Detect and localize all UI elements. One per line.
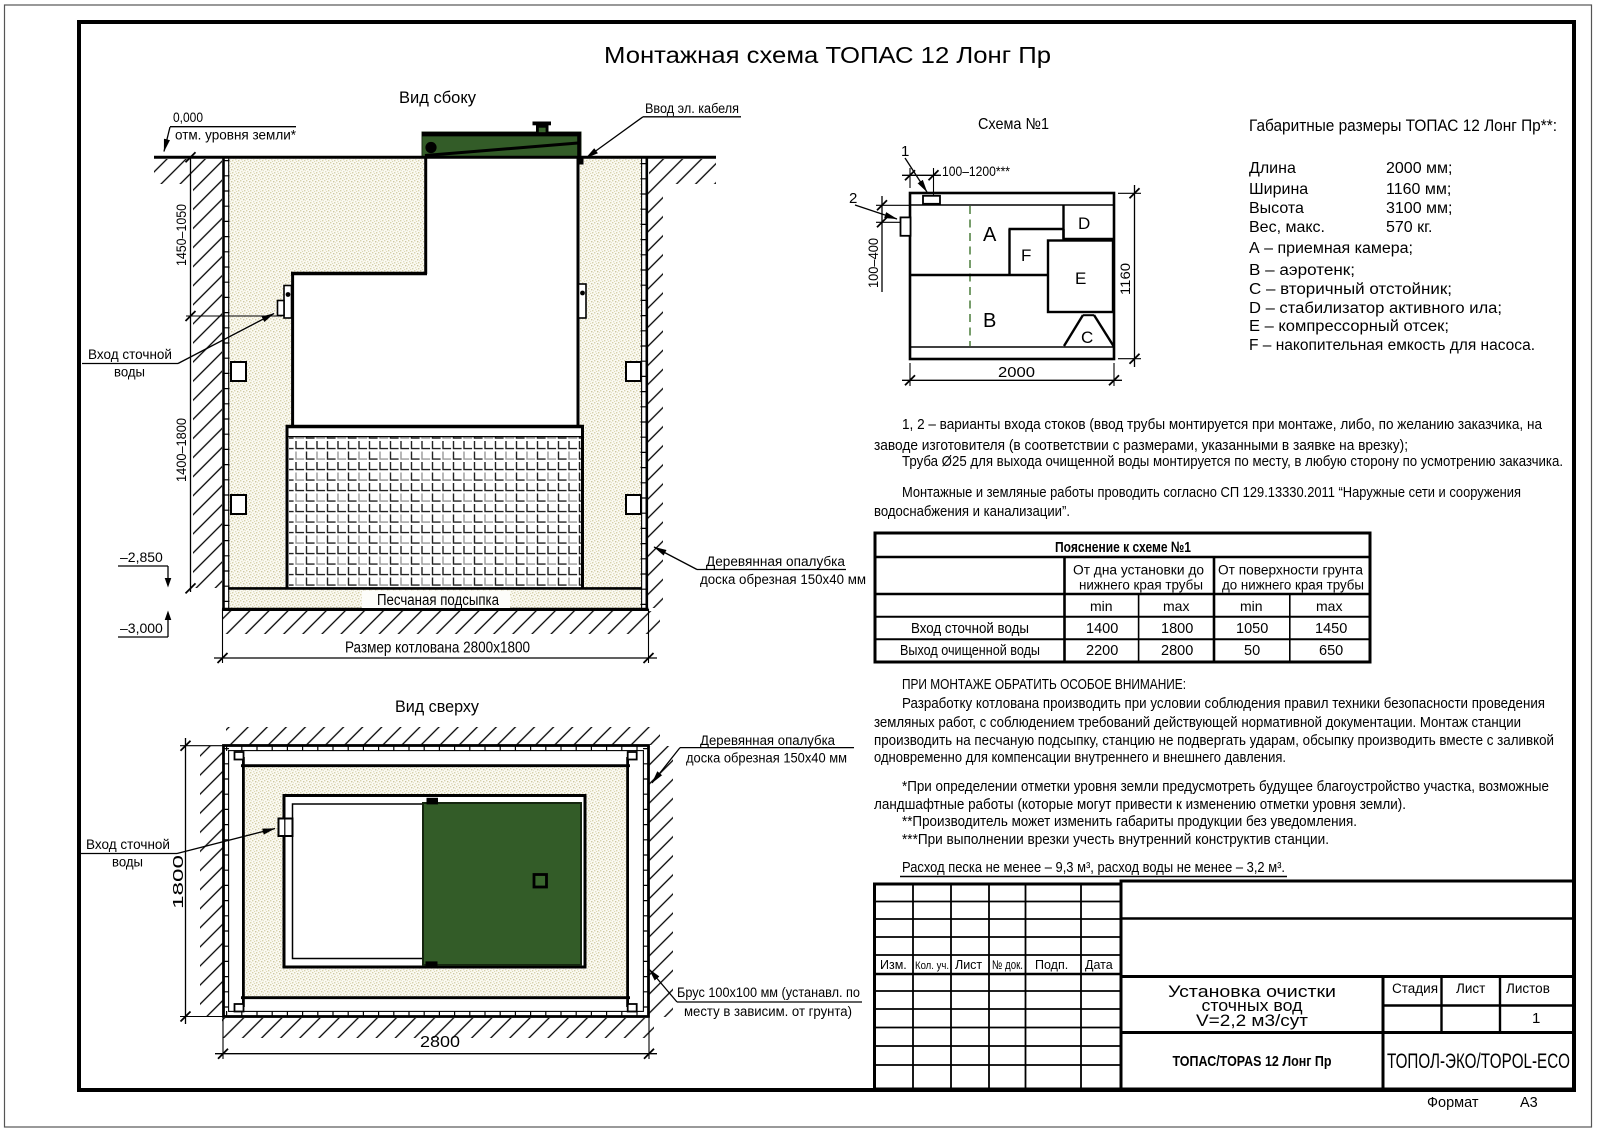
svg-text:min: min <box>1090 598 1113 614</box>
svg-text:№ док.: № док. <box>992 958 1023 972</box>
svg-text:земляных работ, с соблюдением: земляных работ, с соблюдением требований… <box>874 715 1521 731</box>
svg-text:Габаритные размеры ТОПАС 12 Ло: Габаритные размеры ТОПАС 12 Лонг Пр**: <box>1249 116 1557 135</box>
svg-text:месту в зависим. от грунта): месту в зависим. от грунта) <box>684 1004 852 1019</box>
svg-text:1160: 1160 <box>1117 263 1133 295</box>
svg-text:0,000: 0,000 <box>173 109 203 125</box>
svg-text:1400: 1400 <box>1086 621 1118 637</box>
svg-text:Размер котлована 2800х1800: Размер котлована 2800х1800 <box>345 640 530 657</box>
svg-text:одновременно для компенсации в: одновременно для компенсации внутреннего… <box>874 750 1286 766</box>
svg-text:От поверхности грунта: От поверхности грунта <box>1218 563 1363 578</box>
svg-text:**Производитель может изменить: **Производитель может изменить габариты … <box>902 814 1357 830</box>
svg-text:E – компрессорный отсек;: E – компрессорный отсек; <box>1249 318 1449 335</box>
svg-text:Пояснение к схеме №1: Пояснение к схеме №1 <box>1055 539 1191 556</box>
svg-text:заводе изготовителя (в соответ: заводе изготовителя (в соответствии с ра… <box>874 438 1408 454</box>
svg-text:1: 1 <box>1532 1010 1540 1027</box>
svg-text:C: C <box>1081 328 1093 347</box>
svg-text:C – вторичный отстойник;: C – вторичный отстойник; <box>1249 281 1452 298</box>
svg-text:Вид сбоку: Вид сбоку <box>399 88 476 107</box>
svg-text:max: max <box>1316 598 1342 614</box>
svg-text:2: 2 <box>849 190 857 207</box>
svg-text:А3: А3 <box>1520 1095 1538 1111</box>
svg-text:От дна установки до: От дна установки до <box>1073 563 1204 578</box>
svg-text:Лист: Лист <box>1456 981 1485 996</box>
svg-text:–3,000: –3,000 <box>120 620 163 636</box>
svg-text:отм. уровня земли*: отм. уровня земли* <box>175 128 297 143</box>
svg-text:Дата: Дата <box>1085 958 1113 972</box>
svg-text:1160 мм;: 1160 мм; <box>1386 181 1451 198</box>
svg-text:2000: 2000 <box>998 365 1035 381</box>
svg-text:до нижнего края трубы: до нижнего края трубы <box>1222 578 1364 593</box>
svg-text:Выход очищенной воды: Выход очищенной воды <box>900 643 1040 659</box>
svg-text:Деревянная опалубка: Деревянная опалубка <box>706 554 845 569</box>
svg-text:ПРИ МОНТАЖЕ ОБРАТИТЬ ОСОБОЕ ВН: ПРИ МОНТАЖЕ ОБРАТИТЬ ОСОБОЕ ВНИМАНИЕ: <box>902 677 1186 693</box>
svg-text:Разработку котлована производи: Разработку котлована производить при усл… <box>902 696 1545 712</box>
svg-text:570 кг.: 570 кг. <box>1386 219 1432 236</box>
svg-text:нижнего края трубы: нижнего края трубы <box>1079 578 1203 593</box>
svg-text:Монтажные и земляные работы пр: Монтажные и земляные работы проводить со… <box>902 485 1521 501</box>
svg-text:D – стабилизатор активного ила: D – стабилизатор активного ила; <box>1249 300 1502 317</box>
svg-text:1050: 1050 <box>1236 621 1268 637</box>
svg-text:Деревянная опалубка: Деревянная опалубка <box>700 733 835 748</box>
svg-text:1450–1050: 1450–1050 <box>173 204 189 266</box>
svg-text:V=2,2 м3/сут: V=2,2 м3/сут <box>1196 1012 1309 1030</box>
svg-text:Вход сточной воды: Вход сточной воды <box>911 621 1029 637</box>
svg-text:3100 мм;: 3100 мм; <box>1386 200 1452 217</box>
svg-text:***При выполнении врезки учест: ***При выполнении врезки учесть внутренн… <box>902 832 1329 848</box>
svg-text:Вход сточной: Вход сточной <box>88 347 172 362</box>
svg-text:Высота: Высота <box>1249 200 1304 217</box>
svg-text:B: B <box>983 310 996 332</box>
svg-text:Длина: Длина <box>1249 160 1296 177</box>
svg-text:водоснабжения и канализации”.: водоснабжения и канализации”. <box>874 504 1070 520</box>
svg-text:–2,850: –2,850 <box>120 549 163 565</box>
svg-text:100–1200***: 100–1200*** <box>942 163 1010 179</box>
svg-text:1450: 1450 <box>1315 621 1347 637</box>
svg-text:Ширина: Ширина <box>1249 181 1308 198</box>
svg-text:ТОПАС/TOPAS 12 Лонг Пр: ТОПАС/TOPAS 12 Лонг Пр <box>1173 1053 1332 1070</box>
svg-text:A: A <box>983 224 997 246</box>
svg-text:доска обрезная 150х40 мм: доска обрезная 150х40 мм <box>700 572 866 587</box>
svg-text:B – аэротенк;: B – аэротенк; <box>1249 262 1355 279</box>
svg-text:650: 650 <box>1319 643 1343 659</box>
svg-text:Вход сточной: Вход сточной <box>86 837 170 852</box>
svg-text:D: D <box>1078 214 1090 233</box>
svg-text:min: min <box>1240 598 1263 614</box>
svg-text:Вид сверху: Вид сверху <box>395 697 479 716</box>
svg-text:ландшафтные работы (которые мо: ландшафтные работы (которые могут привес… <box>874 797 1406 813</box>
svg-text:50: 50 <box>1244 643 1260 659</box>
svg-text:Листов: Листов <box>1506 981 1550 996</box>
svg-text:воды: воды <box>112 855 143 870</box>
svg-text:1800: 1800 <box>170 855 187 909</box>
svg-text:2000 мм;: 2000 мм; <box>1386 160 1452 177</box>
svg-text:Труба Ø25 для выхода очищенной: Труба Ø25 для выхода очищенной воды монт… <box>902 454 1563 470</box>
svg-text:А – приемная камера;: А – приемная камера; <box>1249 240 1413 257</box>
svg-text:воды: воды <box>114 365 145 380</box>
svg-text:Изм.: Изм. <box>880 958 907 972</box>
svg-text:Ввод эл. кабеля: Ввод эл. кабеля <box>645 101 739 116</box>
svg-text:Расход песка не менее – 9,3 м³: Расход песка не менее – 9,3 м³, расход в… <box>902 860 1285 876</box>
svg-text:Вес, макс.: Вес, макс. <box>1249 219 1325 236</box>
svg-text:1800: 1800 <box>1161 621 1193 637</box>
svg-text:Формат: Формат <box>1427 1095 1479 1111</box>
svg-text:F – накопительная емкость для: F – накопительная емкость для насоса. <box>1249 337 1535 354</box>
svg-text:100–400: 100–400 <box>865 238 881 288</box>
svg-text:2200: 2200 <box>1086 643 1118 659</box>
svg-text:Стадия: Стадия <box>1392 981 1438 996</box>
svg-text:max: max <box>1163 598 1189 614</box>
svg-text:Монтажная схема ТОПАС 12 Лонг: Монтажная схема ТОПАС 12 Лонг Пр <box>604 42 1051 68</box>
svg-text:2800: 2800 <box>420 1034 460 1051</box>
svg-text:2800: 2800 <box>1161 643 1193 659</box>
svg-text:производить на песчаную подсып: производить на песчаную подсыпку, станци… <box>874 733 1554 749</box>
svg-text:Подп.: Подп. <box>1035 958 1068 972</box>
svg-text:1: 1 <box>901 143 909 160</box>
svg-text:Лист: Лист <box>955 958 982 972</box>
svg-text:ТОПОЛ-ЭКО/TOPOL-ECO: ТОПОЛ-ЭКО/TOPOL-ECO <box>1387 1050 1570 1073</box>
svg-text:F: F <box>1021 246 1031 265</box>
svg-text:Брус 100х100 мм (устанавл. по: Брус 100х100 мм (устанавл. по <box>677 985 860 1000</box>
svg-text:Кол. уч.: Кол. уч. <box>915 960 949 972</box>
svg-text:Песчаная подсыпка: Песчаная подсыпка <box>377 592 499 609</box>
svg-text:доска обрезная 150х40 мм: доска обрезная 150х40 мм <box>686 751 847 766</box>
svg-text:E: E <box>1075 269 1086 288</box>
svg-text:1, 2 – варианты входа стоков: 1, 2 – варианты входа стоков (ввод трубы… <box>902 417 1543 433</box>
svg-text:*При определении отметки уровн: *При определении отметки уровня земли пр… <box>902 779 1549 795</box>
svg-text:Схема №1: Схема №1 <box>978 116 1049 133</box>
svg-text:1400–1800: 1400–1800 <box>173 418 189 482</box>
